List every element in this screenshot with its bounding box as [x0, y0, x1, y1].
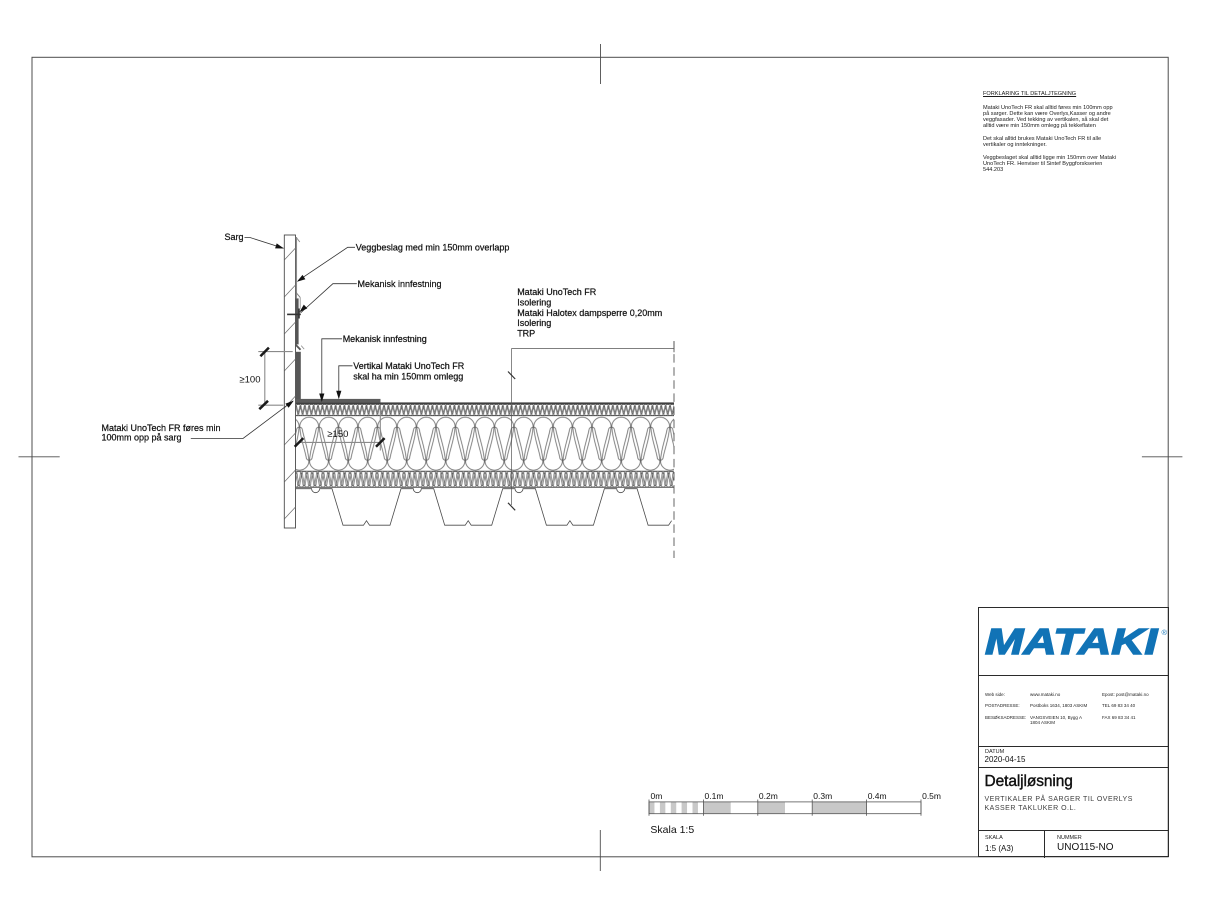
svg-text:Veggbeslag med min 150mm overl: Veggbeslag med min 150mm overlapp	[356, 242, 510, 252]
svg-text:0m: 0m	[651, 791, 663, 801]
svg-text:Vertikal Mataki UnoTech FR: Vertikal Mataki UnoTech FR	[353, 361, 465, 371]
svg-text:0.3m: 0.3m	[813, 791, 832, 801]
svg-text:≥100: ≥100	[239, 374, 260, 385]
svg-text:TRP: TRP	[517, 328, 535, 338]
svg-text:0.5m: 0.5m	[922, 791, 941, 801]
svg-text:≥150: ≥150	[327, 429, 348, 440]
svg-text:0.2m: 0.2m	[759, 791, 778, 801]
svg-text:skal ha min 150mm omlegg: skal ha min 150mm omlegg	[353, 371, 463, 381]
svg-text:Mataki Halotex dampsperre 0,20: Mataki Halotex dampsperre 0,20mm	[517, 308, 662, 318]
svg-text:Skala 1:5: Skala 1:5	[650, 824, 694, 836]
svg-text:Isolering: Isolering	[517, 298, 551, 308]
svg-text:Sarg: Sarg	[225, 232, 244, 242]
svg-text:0.1m: 0.1m	[705, 791, 724, 801]
svg-text:Mataki UnoTech FR føres min: Mataki UnoTech FR føres min	[102, 423, 221, 433]
svg-text:100mm opp på sarg: 100mm opp på sarg	[102, 433, 182, 443]
svg-text:Mataki UnoTech FR: Mataki UnoTech FR	[517, 287, 597, 297]
svg-text:0.4m: 0.4m	[868, 791, 887, 801]
svg-text:Mekanisk innfestning: Mekanisk innfestning	[343, 334, 427, 344]
svg-text:Isolering: Isolering	[517, 318, 551, 328]
svg-text:Mekanisk innfestning: Mekanisk innfestning	[358, 279, 442, 289]
